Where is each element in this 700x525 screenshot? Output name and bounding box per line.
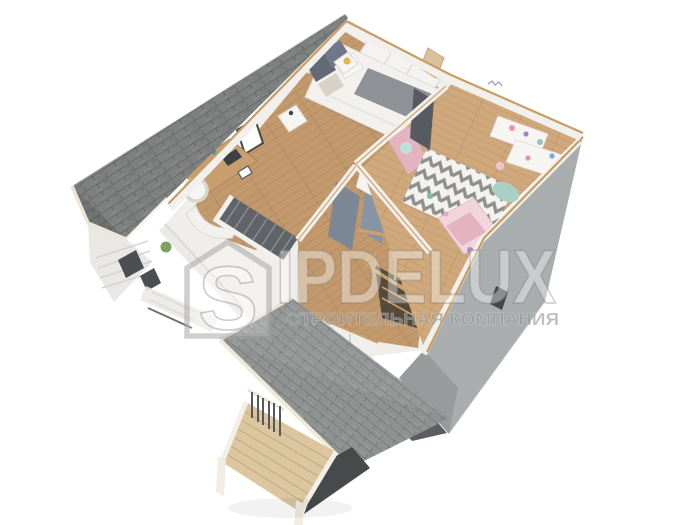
watermark-brand-text: IPDELUX <box>276 235 556 320</box>
watermark-tagline-text: СТРОИТЕЛЬНАЯ КОМПАНИЯ <box>287 309 559 329</box>
toy-purple <box>523 131 528 136</box>
watermark-logo-letter: S <box>198 249 258 349</box>
plant-terrace <box>161 242 172 253</box>
house-render-image: S IPDELUX СТРОИТЕЛЬНАЯ КОМПАНИЯ <box>0 0 700 525</box>
nightstand-item <box>289 111 293 115</box>
toy-pink-1 <box>509 125 515 131</box>
rug-toy-pink <box>444 212 449 217</box>
toy-pink-2 <box>525 155 530 160</box>
render-canvas: S IPDELUX СТРОИТЕЛЬНАЯ КОМПАНИЯ <box>0 0 700 525</box>
toy-blue <box>549 153 554 158</box>
deck-post-left <box>216 456 226 496</box>
window-dark-2 <box>140 268 161 291</box>
wall-art-teal <box>400 142 412 154</box>
kids-chair <box>496 162 504 170</box>
deck-ground-shadow <box>228 498 352 518</box>
yellow-lamp <box>343 57 350 64</box>
toy-mint <box>537 139 543 145</box>
wall-doodle <box>488 81 502 86</box>
rug-toy-teal <box>427 193 433 199</box>
